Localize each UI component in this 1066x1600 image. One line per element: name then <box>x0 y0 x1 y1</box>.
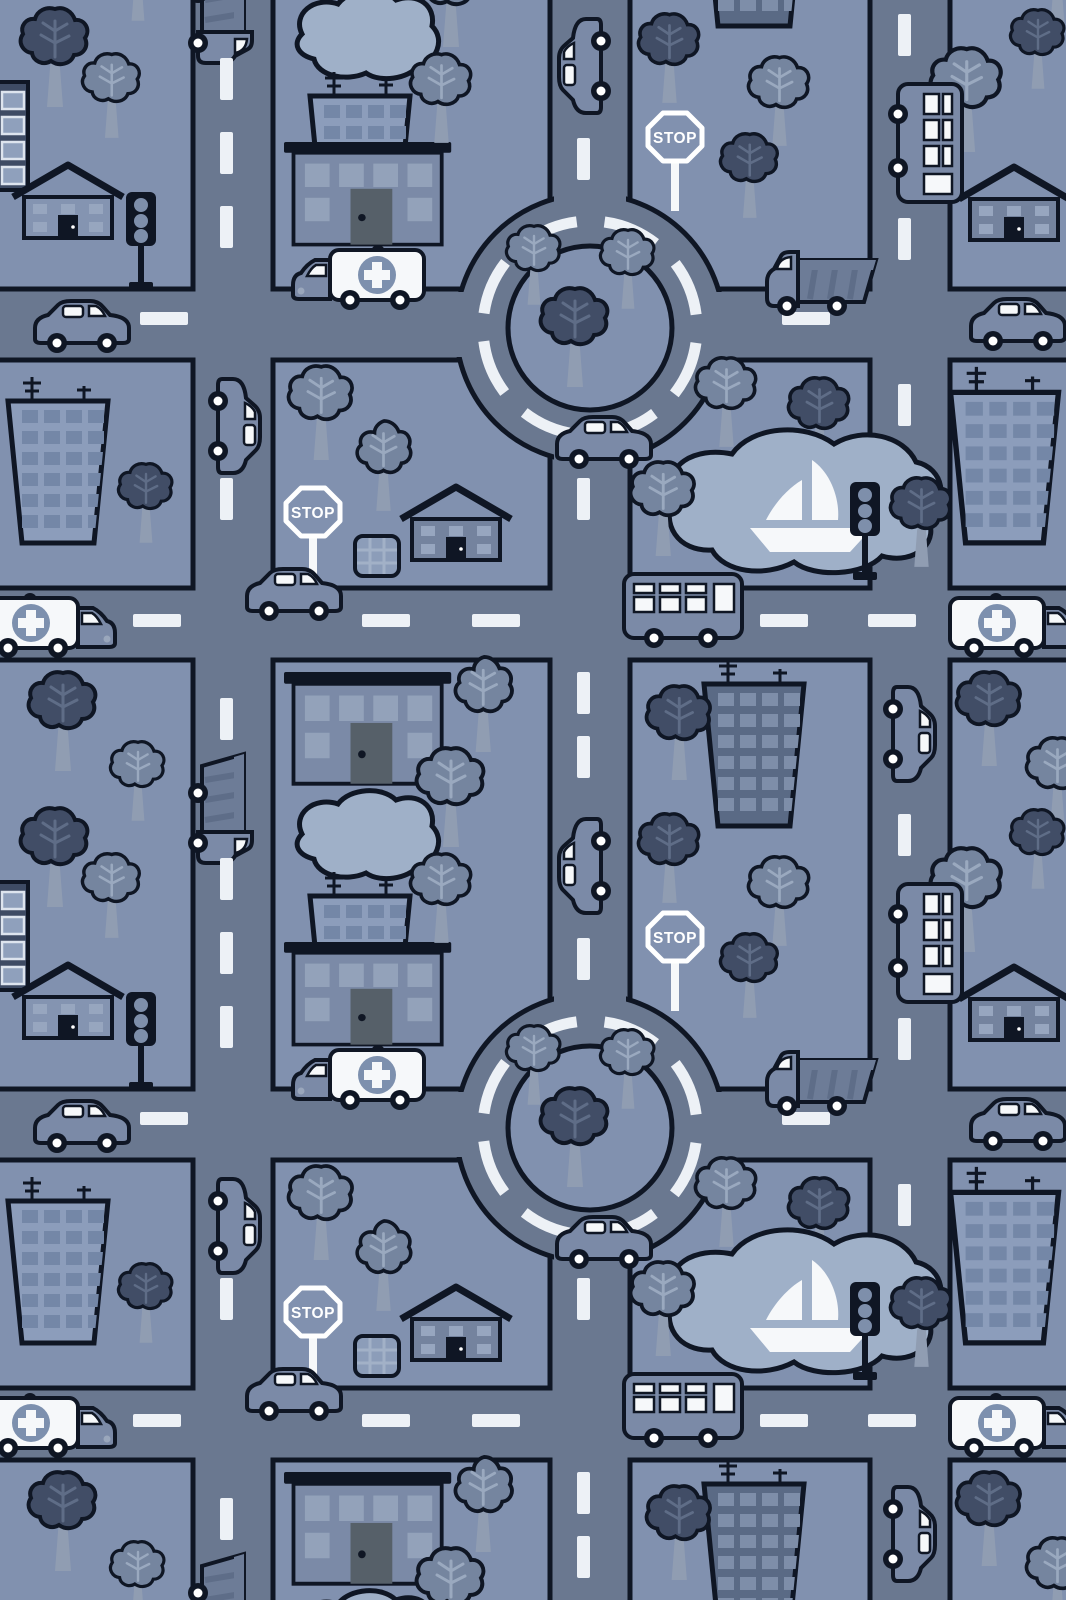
city-map-svg: STOP <box>0 0 1066 1600</box>
city-map-pattern: STOP <box>0 0 1066 1600</box>
